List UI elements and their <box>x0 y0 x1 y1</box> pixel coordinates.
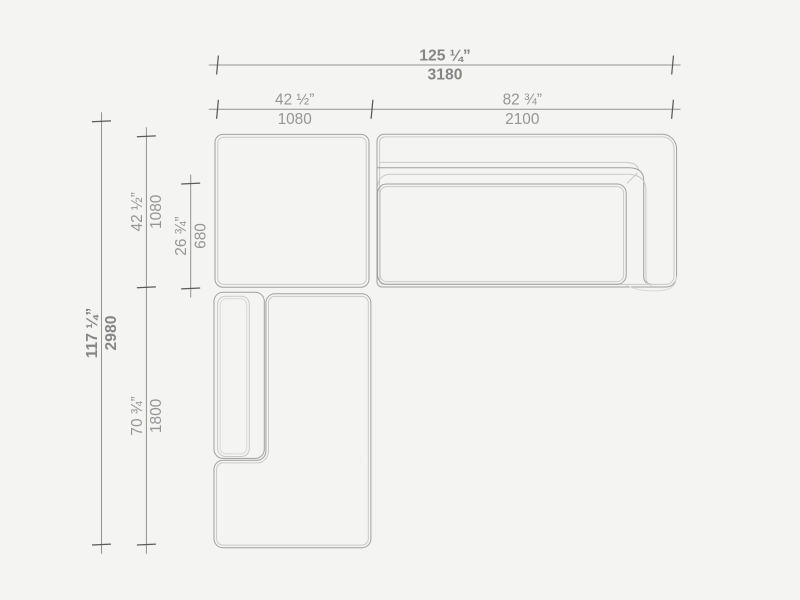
svg-text:117 ¼”: 117 ¼” <box>84 308 101 359</box>
svg-text:82 ¾”: 82 ¾” <box>503 92 542 109</box>
svg-text:680: 680 <box>192 223 209 249</box>
svg-text:3180: 3180 <box>428 67 463 84</box>
svg-text:42 ½”: 42 ½” <box>275 92 314 109</box>
svg-text:26 ¾”: 26 ¾” <box>173 216 190 255</box>
svg-text:125 ¼”: 125 ¼” <box>419 47 470 64</box>
svg-text:1080: 1080 <box>278 111 312 128</box>
svg-text:1800: 1800 <box>148 399 165 433</box>
svg-text:42 ½”: 42 ½” <box>129 192 146 231</box>
svg-text:70 ¾”: 70 ¾” <box>129 396 146 435</box>
svg-text:2980: 2980 <box>103 315 120 350</box>
svg-text:2100: 2100 <box>505 111 539 128</box>
svg-text:1080: 1080 <box>148 195 165 229</box>
